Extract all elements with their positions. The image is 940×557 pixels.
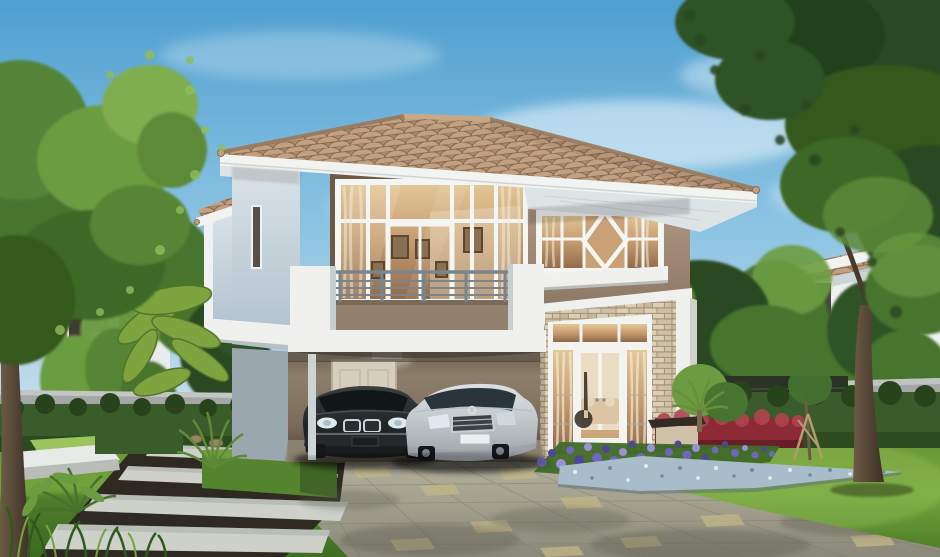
door-leaves [575,348,625,456]
balcony-slab [288,330,546,352]
license-plate [352,437,378,446]
french-doors [548,314,652,462]
roof-ridge [404,116,490,119]
side-window [252,206,261,268]
grille [344,420,360,432]
downspout [308,354,316,460]
eave-finial [753,187,760,194]
house-exterior-rendering: Exterior rendering of a two-storey detac… [0,0,940,557]
grille [452,414,494,432]
scene-canvas [0,0,940,557]
license-plate [460,434,490,444]
